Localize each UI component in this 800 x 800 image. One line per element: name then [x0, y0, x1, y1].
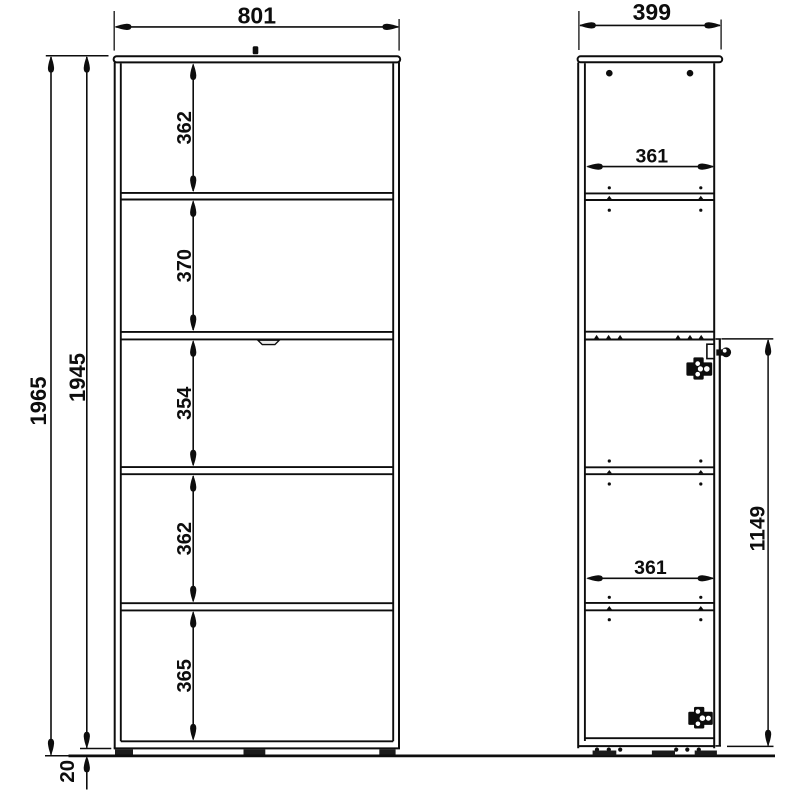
svg-text:361: 361 — [634, 557, 667, 579]
svg-text:801: 801 — [238, 2, 277, 28]
svg-text:1965: 1965 — [26, 377, 51, 426]
svg-text:354: 354 — [174, 386, 196, 420]
svg-text:1945: 1945 — [65, 353, 90, 402]
svg-text:370: 370 — [174, 249, 196, 282]
svg-text:399: 399 — [633, 0, 671, 25]
svg-text:362: 362 — [174, 522, 196, 555]
svg-text:1149: 1149 — [747, 506, 770, 552]
svg-text:362: 362 — [174, 111, 196, 144]
svg-text:20: 20 — [56, 760, 79, 783]
svg-text:361: 361 — [636, 146, 669, 168]
svg-text:365: 365 — [174, 659, 196, 692]
